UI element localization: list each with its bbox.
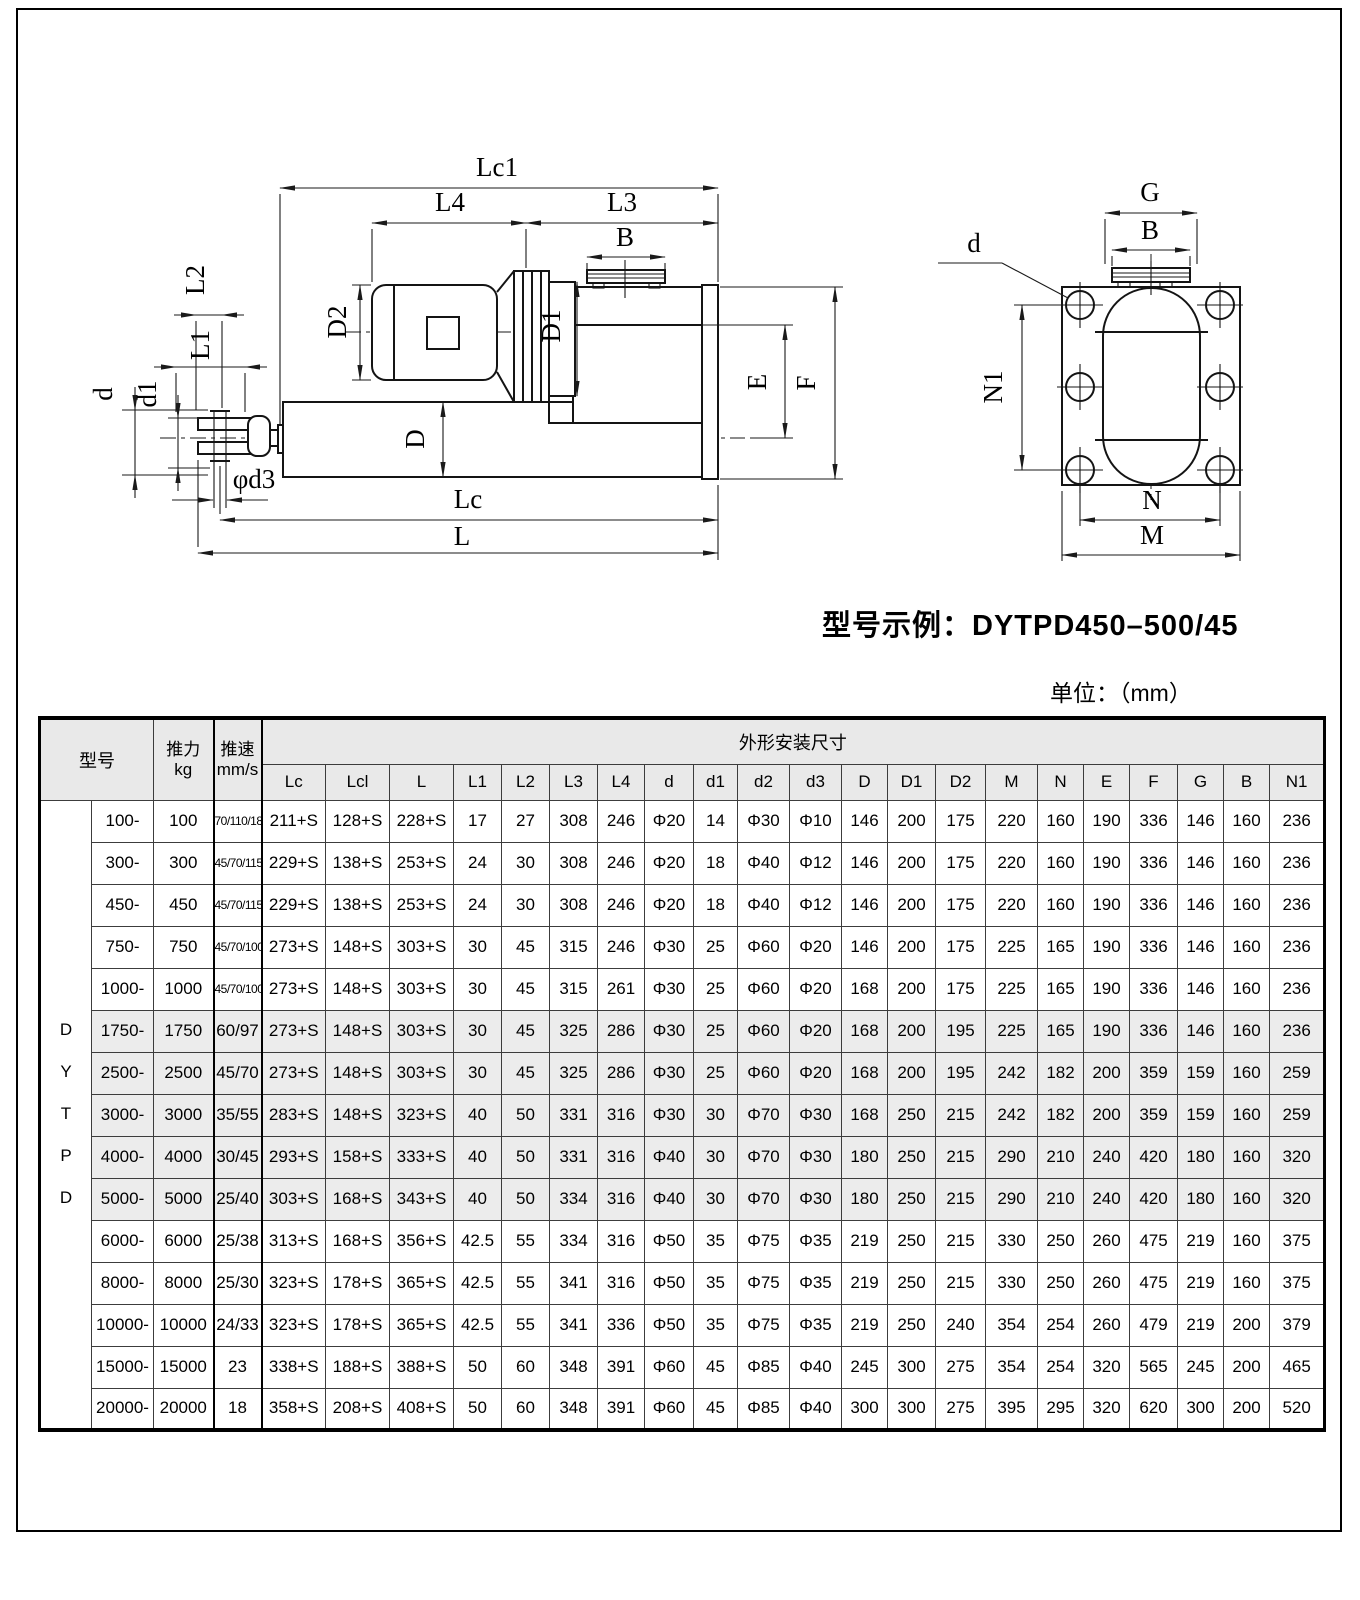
dim-cell: 215 — [936, 1220, 986, 1262]
speed-cell: 24/33 — [214, 1304, 262, 1346]
dim-cell: 200 — [888, 1052, 936, 1094]
dim-cell: 30 — [454, 1010, 502, 1052]
dim-label-l1: L1 — [185, 330, 215, 360]
table-row: 4000-400030/45293+S158+S333+S4050331316Φ… — [40, 1136, 1325, 1178]
dim-cell: 240 — [1084, 1178, 1130, 1220]
speed-cell: 25/30 — [214, 1262, 262, 1304]
spec-table: 型号 推力 kg 推速 mm/s 外形安装尺寸 LcLclLL1L2L3L4dd… — [38, 716, 1326, 1432]
table-row: 3000-300035/55283+S148+S323+S4050331316Φ… — [40, 1094, 1325, 1136]
model-cell: 4000- — [92, 1136, 154, 1178]
model-cell: 750- — [92, 926, 154, 968]
dim-cell: Φ20 — [645, 800, 694, 842]
dim-cell: 259 — [1270, 1052, 1325, 1094]
dim-cell: 220 — [986, 884, 1038, 926]
dim-cell: 146 — [842, 800, 888, 842]
dim-cell: 35 — [694, 1220, 738, 1262]
dim-cell: Φ70 — [738, 1094, 790, 1136]
series-letters: DYTPD — [40, 800, 92, 1430]
dim-cell: Φ40 — [790, 1388, 842, 1430]
dim-cell: 475 — [1130, 1262, 1178, 1304]
dim-cell: 160 — [1224, 1136, 1270, 1178]
dim-cell: 45 — [502, 1052, 550, 1094]
dim-cell: 323+S — [262, 1304, 326, 1346]
dim-cell: 236 — [1270, 842, 1325, 884]
speed-cell: 23 — [214, 1346, 262, 1388]
dim-cell: 190 — [1084, 968, 1130, 1010]
dim-cell: Φ40 — [645, 1178, 694, 1220]
dim-cell: 320 — [1084, 1388, 1130, 1430]
dim-cell: 160 — [1038, 842, 1084, 884]
dim-cell: 375 — [1270, 1262, 1325, 1304]
dim-cell: 180 — [842, 1178, 888, 1220]
dim-cell: 320 — [1270, 1178, 1325, 1220]
dim-cell: 316 — [598, 1178, 645, 1220]
model-cell: 5000- — [92, 1178, 154, 1220]
dim-cell: 45 — [694, 1346, 738, 1388]
dim-cell: 146 — [1178, 1010, 1224, 1052]
dim-cell: 165 — [1038, 1010, 1084, 1052]
dim-cell: 35 — [694, 1304, 738, 1346]
dim-cell: 175 — [936, 842, 986, 884]
speed-cell: 45/70 — [214, 1052, 262, 1094]
dim-cell: 330 — [986, 1220, 1038, 1262]
header-speed-unit: mm/s — [215, 760, 261, 780]
dim-cell: 253+S — [390, 842, 454, 884]
dim-cell: 128+S — [326, 800, 390, 842]
dim-cell: 148+S — [326, 1010, 390, 1052]
dim-cell: 138+S — [326, 884, 390, 926]
dim-cell: 188+S — [326, 1346, 390, 1388]
dim-cell: 236 — [1270, 884, 1325, 926]
dim-cell: 18 — [694, 884, 738, 926]
dim-cell: Φ30 — [790, 1178, 842, 1220]
dim-label-l2: L2 — [180, 265, 210, 295]
dim-label-lc: Lc — [454, 484, 482, 514]
dim-cell: Φ60 — [738, 1010, 790, 1052]
table-row: 300-30045/70/115229+S138+S253+S243030824… — [40, 842, 1325, 884]
dim-cell: 391 — [598, 1388, 645, 1430]
dim-cell: 146 — [1178, 842, 1224, 884]
dim-cell: 30 — [694, 1136, 738, 1178]
dim-header-cell: B — [1224, 764, 1270, 800]
header-model: 型号 — [40, 718, 154, 800]
dim-cell: 323+S — [262, 1262, 326, 1304]
speed-cell: 45/70/100 — [214, 926, 262, 968]
dim-cell: 182 — [1038, 1052, 1084, 1094]
dim-cell: 475 — [1130, 1220, 1178, 1262]
thrust-cell: 300 — [154, 842, 214, 884]
speed-cell: 45/70/100 — [214, 968, 262, 1010]
dim-cell: 165 — [1038, 926, 1084, 968]
dim-cell: 336 — [1130, 1010, 1178, 1052]
dim-cell: 245 — [1178, 1346, 1224, 1388]
dim-label-d2-upper: D2 — [322, 306, 352, 339]
dim-cell: 55 — [502, 1304, 550, 1346]
dim-cell: 168+S — [326, 1220, 390, 1262]
dim-cell: 160 — [1224, 926, 1270, 968]
table-body: DYTPD100-10070/110/185211+S128+S228+S172… — [40, 800, 1325, 1430]
dim-cell: Φ40 — [790, 1346, 842, 1388]
dim-cell: 195 — [936, 1052, 986, 1094]
dim-cell: 146 — [842, 842, 888, 884]
dim-cell: 336 — [598, 1304, 645, 1346]
dim-cell: 158+S — [326, 1136, 390, 1178]
dim-cell: 146 — [1178, 926, 1224, 968]
dim-cell: 290 — [986, 1136, 1038, 1178]
dim-cell: 50 — [454, 1388, 502, 1430]
dim-cell: 25 — [694, 926, 738, 968]
table-row: 20000-2000018358+S208+S408+S5060348391Φ6… — [40, 1388, 1325, 1430]
dim-cell: 465 — [1270, 1346, 1325, 1388]
dim-cell: Φ30 — [645, 1010, 694, 1052]
dim-cell: 395 — [986, 1388, 1038, 1430]
header-thrust-cn: 推力 — [154, 740, 213, 760]
speed-cell: 25/38 — [214, 1220, 262, 1262]
dim-label-d-upper: D — [400, 429, 430, 449]
dim-cell: 159 — [1178, 1052, 1224, 1094]
thrust-cell: 3000 — [154, 1094, 214, 1136]
dim-cell: 42.5 — [454, 1220, 502, 1262]
dim-header-cell: E — [1084, 764, 1130, 800]
dim-cell: 208+S — [326, 1388, 390, 1430]
dim-cell: 146 — [1178, 968, 1224, 1010]
thrust-cell: 1750 — [154, 1010, 214, 1052]
dim-cell: 25 — [694, 968, 738, 1010]
speed-cell: 25/40 — [214, 1178, 262, 1220]
dim-cell: 341 — [550, 1304, 598, 1346]
dim-cell: Φ30 — [645, 1052, 694, 1094]
dim-cell: 215 — [936, 1136, 986, 1178]
speed-cell: 30/45 — [214, 1136, 262, 1178]
dim-cell: 18 — [694, 842, 738, 884]
dim-cell: 148+S — [326, 926, 390, 968]
dim-cell: 60 — [502, 1388, 550, 1430]
dim-cell: 300 — [842, 1388, 888, 1430]
dim-header-cell: d3 — [790, 764, 842, 800]
dim-cell: 259 — [1270, 1094, 1325, 1136]
dim-cell: 175 — [936, 926, 986, 968]
dim-label-lc1: Lc1 — [476, 152, 518, 182]
dim-cell: 200 — [1084, 1052, 1130, 1094]
dim-cell: 325 — [550, 1052, 598, 1094]
model-cell: 3000- — [92, 1094, 154, 1136]
dim-cell: 246 — [598, 926, 645, 968]
dim-header-cell: F — [1130, 764, 1178, 800]
dim-cell: Φ20 — [645, 884, 694, 926]
dim-cell: 273+S — [262, 926, 326, 968]
dim-cell: 225 — [986, 1010, 1038, 1052]
dim-cell: Φ50 — [645, 1304, 694, 1346]
dim-cell: 334 — [550, 1178, 598, 1220]
dim-label-n1: N1 — [978, 371, 1008, 404]
dim-cell: 225 — [986, 926, 1038, 968]
dim-cell: 165 — [1038, 968, 1084, 1010]
dim-cell: 273+S — [262, 1010, 326, 1052]
dim-label-d1-small: d1 — [132, 381, 162, 408]
dim-cell: 336 — [1130, 800, 1178, 842]
dim-header-cell: L4 — [598, 764, 645, 800]
dim-cell: 200 — [888, 968, 936, 1010]
dim-cell: 55 — [502, 1220, 550, 1262]
dim-cell: Φ20 — [790, 968, 842, 1010]
dim-cell: 250 — [1038, 1262, 1084, 1304]
dim-label-b-side: B — [616, 222, 634, 252]
dim-cell: 146 — [842, 926, 888, 968]
speed-cell: 45/70/115 — [214, 842, 262, 884]
dim-cell: 50 — [502, 1178, 550, 1220]
dim-cell: 420 — [1130, 1178, 1178, 1220]
dim-cell: 315 — [550, 926, 598, 968]
dim-cell: Φ70 — [738, 1136, 790, 1178]
dim-header-cell: L1 — [454, 764, 502, 800]
dim-cell: 250 — [888, 1136, 936, 1178]
dim-cell: 250 — [888, 1094, 936, 1136]
dim-cell: 359 — [1130, 1094, 1178, 1136]
dim-label-m: M — [1140, 520, 1164, 550]
dim-cell: 148+S — [326, 1052, 390, 1094]
dim-cell: Φ70 — [738, 1178, 790, 1220]
dim-cell: 260 — [1084, 1304, 1130, 1346]
dim-cell: 250 — [888, 1262, 936, 1304]
table-row: 6000-600025/38313+S168+S356+S42.55533431… — [40, 1220, 1325, 1262]
dim-header-cell: d2 — [738, 764, 790, 800]
dim-cell: Φ75 — [738, 1220, 790, 1262]
dim-cell: 200 — [888, 926, 936, 968]
dim-cell: 160 — [1224, 800, 1270, 842]
model-cell: 100- — [92, 800, 154, 842]
header-dims-group: 外形安装尺寸 — [262, 718, 1325, 764]
dim-cell: 293+S — [262, 1136, 326, 1178]
thrust-cell: 10000 — [154, 1304, 214, 1346]
dim-cell: 24 — [454, 884, 502, 926]
dim-cell: 331 — [550, 1094, 598, 1136]
dim-cell: 168 — [842, 1010, 888, 1052]
side-view-drawing: Lc1 L4 L3 B D2 D1 D L2 — [88, 152, 843, 560]
dim-cell: 359 — [1130, 1052, 1178, 1094]
model-cell: 10000- — [92, 1304, 154, 1346]
dim-cell: Φ30 — [645, 1094, 694, 1136]
dim-cell: 336 — [1130, 884, 1178, 926]
dim-cell: Φ35 — [790, 1262, 842, 1304]
dim-cell: 315 — [550, 968, 598, 1010]
speed-cell: 18 — [214, 1388, 262, 1430]
dim-cell: 343+S — [390, 1178, 454, 1220]
thrust-cell: 20000 — [154, 1388, 214, 1430]
dim-cell: 341 — [550, 1262, 598, 1304]
dim-header-cell: Lcl — [326, 764, 390, 800]
dim-cell: Φ50 — [645, 1262, 694, 1304]
dim-cell: 303+S — [390, 926, 454, 968]
model-cell: 300- — [92, 842, 154, 884]
dim-cell: 14 — [694, 800, 738, 842]
model-cell: 450- — [92, 884, 154, 926]
dim-cell: 168 — [842, 968, 888, 1010]
dim-label-n: N — [1142, 485, 1162, 515]
dim-cell: Φ40 — [645, 1136, 694, 1178]
table-row: 5000-500025/40303+S168+S343+S4050334316Φ… — [40, 1178, 1325, 1220]
model-example-text: 型号示例：DYTPD450–500/45 — [822, 602, 1239, 644]
dim-header-cell: d — [645, 764, 694, 800]
dim-cell: 60 — [502, 1346, 550, 1388]
dim-header-cell: N — [1038, 764, 1084, 800]
dim-cell: 420 — [1130, 1136, 1178, 1178]
dim-cell: 30 — [694, 1094, 738, 1136]
speed-cell: 45/70/115 — [214, 884, 262, 926]
dim-cell: 348 — [550, 1346, 598, 1388]
dim-cell: Φ20 — [790, 1010, 842, 1052]
table-row: 15000-1500023338+S188+S388+S5060348391Φ6… — [40, 1346, 1325, 1388]
dim-cell: 290 — [986, 1178, 1038, 1220]
dim-cell: 30 — [502, 884, 550, 926]
header-thrust: 推力 kg — [154, 718, 214, 800]
dim-cell: 229+S — [262, 884, 326, 926]
dim-cell: 200 — [888, 1010, 936, 1052]
dim-cell: 190 — [1084, 926, 1130, 968]
dim-cell: 160 — [1224, 1262, 1270, 1304]
table-row: 750-75045/70/100273+S148+S303+S304531524… — [40, 926, 1325, 968]
thrust-cell: 1000 — [154, 968, 214, 1010]
dim-cell: 160 — [1224, 884, 1270, 926]
dim-cell: 228+S — [390, 800, 454, 842]
dim-cell: 220 — [986, 800, 1038, 842]
dim-cell: 338+S — [262, 1346, 326, 1388]
dim-label-b-end: B — [1141, 215, 1159, 245]
dim-cell: 273+S — [262, 968, 326, 1010]
dim-cell: 303+S — [390, 1052, 454, 1094]
dim-cell: 336 — [1130, 968, 1178, 1010]
dim-cell: 286 — [598, 1052, 645, 1094]
dim-cell: 303+S — [262, 1178, 326, 1220]
dim-cell: 146 — [1178, 884, 1224, 926]
dim-cell: Φ60 — [738, 968, 790, 1010]
dim-label-d-end: d — [967, 228, 981, 258]
dim-cell: 160 — [1224, 1220, 1270, 1262]
dim-cell: 242 — [986, 1052, 1038, 1094]
thrust-cell: 15000 — [154, 1346, 214, 1388]
dim-cell: 215 — [936, 1262, 986, 1304]
dim-cell: 25 — [694, 1052, 738, 1094]
dim-cell: 40 — [454, 1178, 502, 1220]
dim-cell: 229+S — [262, 842, 326, 884]
dim-cell: 30 — [454, 968, 502, 1010]
dim-cell: Φ50 — [645, 1220, 694, 1262]
model-cell: 6000- — [92, 1220, 154, 1262]
table-row: DYTPD100-10070/110/185211+S128+S228+S172… — [40, 800, 1325, 842]
dim-cell: 190 — [1084, 1010, 1130, 1052]
dim-cell: 200 — [888, 884, 936, 926]
dim-cell: 308 — [550, 800, 598, 842]
dim-cell: Φ35 — [790, 1304, 842, 1346]
dim-cell: 334 — [550, 1220, 598, 1262]
table-row: 2500-250045/70273+S148+S303+S3045325286Φ… — [40, 1052, 1325, 1094]
dim-cell: 242 — [986, 1094, 1038, 1136]
dim-cell: 160 — [1224, 968, 1270, 1010]
dim-header-cell: D1 — [888, 764, 936, 800]
dim-cell: 175 — [936, 800, 986, 842]
dim-cell: 160 — [1224, 1052, 1270, 1094]
dim-cell: 200 — [1224, 1304, 1270, 1346]
dim-cell: 175 — [936, 968, 986, 1010]
header-speed: 推速 mm/s — [214, 718, 262, 800]
table-row: 1000-100045/70/100273+S148+S303+S3045315… — [40, 968, 1325, 1010]
dim-cell: 168+S — [326, 1178, 390, 1220]
dim-cell: 320 — [1270, 1136, 1325, 1178]
dim-header-cell: N1 — [1270, 764, 1325, 800]
dim-cell: 30 — [502, 842, 550, 884]
dim-cell: 356+S — [390, 1220, 454, 1262]
dim-cell: 254 — [1038, 1304, 1084, 1346]
dim-cell: 160 — [1038, 884, 1084, 926]
thrust-cell: 450 — [154, 884, 214, 926]
dim-cell: 308 — [550, 842, 598, 884]
dim-cell: 50 — [502, 1136, 550, 1178]
dim-cell: 408+S — [390, 1388, 454, 1430]
dim-label-d1-upper: D1 — [536, 310, 566, 343]
model-cell: 8000- — [92, 1262, 154, 1304]
dim-cell: 160 — [1224, 1094, 1270, 1136]
dim-cell: 200 — [888, 800, 936, 842]
dim-cell: 620 — [1130, 1388, 1178, 1430]
model-cell: 1750- — [92, 1010, 154, 1052]
dim-cell: 146 — [1178, 800, 1224, 842]
dim-cell: Φ12 — [790, 884, 842, 926]
dim-cell: 182 — [1038, 1094, 1084, 1136]
model-cell: 1000- — [92, 968, 154, 1010]
dim-cell: 40 — [454, 1094, 502, 1136]
dim-cell: 236 — [1270, 926, 1325, 968]
dim-cell: Φ30 — [790, 1094, 842, 1136]
thrust-cell: 100 — [154, 800, 214, 842]
dim-cell: 219 — [1178, 1220, 1224, 1262]
dim-cell: 300 — [888, 1346, 936, 1388]
thrust-cell: 4000 — [154, 1136, 214, 1178]
dim-cell: 336 — [1130, 926, 1178, 968]
dim-cell: Φ60 — [645, 1388, 694, 1430]
dim-cell: 42.5 — [454, 1262, 502, 1304]
dim-cell: 323+S — [390, 1094, 454, 1136]
dim-cell: 190 — [1084, 842, 1130, 884]
dim-cell: Φ20 — [790, 1052, 842, 1094]
dim-cell: 236 — [1270, 1010, 1325, 1052]
model-cell: 15000- — [92, 1346, 154, 1388]
dim-cell: 30 — [454, 1052, 502, 1094]
dim-cell: 316 — [598, 1094, 645, 1136]
dim-cell: 303+S — [390, 968, 454, 1010]
dim-cell: 210 — [1038, 1136, 1084, 1178]
dim-header-cell: D — [842, 764, 888, 800]
dim-cell: 331 — [550, 1136, 598, 1178]
dim-header-cell: D2 — [936, 764, 986, 800]
dim-cell: 40 — [454, 1136, 502, 1178]
dim-cell: 17 — [454, 800, 502, 842]
dim-cell: 325 — [550, 1010, 598, 1052]
dim-cell: 180 — [1178, 1178, 1224, 1220]
dim-cell: Φ75 — [738, 1304, 790, 1346]
dim-cell: 379 — [1270, 1304, 1325, 1346]
dim-cell: 246 — [598, 842, 645, 884]
dim-label-g: G — [1140, 177, 1160, 207]
dim-cell: 303+S — [390, 1010, 454, 1052]
unit-note: 单位：（mm） — [1050, 674, 1192, 708]
thrust-cell: 6000 — [154, 1220, 214, 1262]
dim-cell: 200 — [1084, 1094, 1130, 1136]
dim-label-l3: L3 — [607, 187, 637, 217]
dim-cell: Φ10 — [790, 800, 842, 842]
dim-cell: 479 — [1130, 1304, 1178, 1346]
dim-label-l: L — [454, 521, 471, 551]
dim-cell: 159 — [1178, 1094, 1224, 1136]
dim-cell: Φ40 — [738, 884, 790, 926]
